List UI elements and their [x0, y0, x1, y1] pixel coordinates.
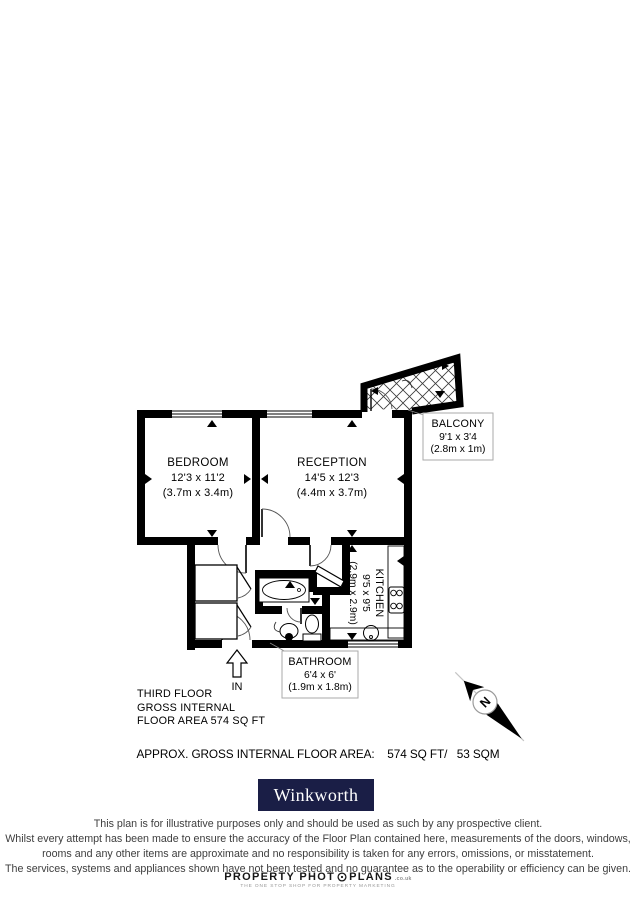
bathroom-dims-imperial: 6'4 x 6'	[304, 670, 336, 681]
footer-tagline: THE ONE STOP SHOP FOR PROPERTY MARKETING	[0, 884, 636, 889]
bathroom-label-box: BATHROOM 6'4 x 6' (1.9m x 1.8m)	[270, 643, 358, 698]
reception-dims-imperial: 14'5 x 12'3	[305, 472, 360, 484]
entrance-marker: IN	[227, 650, 247, 693]
toilet-tank	[303, 634, 321, 641]
balcony-dims-imperial: 9'1 x 3'4	[439, 432, 477, 443]
reception-label: RECEPTION	[297, 457, 367, 469]
floorplan-page: { "floor_plan": { "rooms": [ {"id":"bedr…	[0, 0, 636, 900]
footer-brand-left: PROPERTY PHOT	[224, 871, 335, 883]
balcony-label: BALCONY	[431, 418, 484, 430]
disclaimer-line3: rooms and any other items are approximat…	[0, 847, 636, 862]
gross-area-summary: APPROX. GROSS INTERNAL FLOOR AREA: 574 S…	[0, 747, 636, 761]
toilet-bowl	[306, 615, 319, 633]
cupboard-door-leaf	[315, 566, 344, 587]
footer-brand-suffix: .co.uk	[395, 876, 412, 882]
disclaimer-line2: Whilst every attempt has been made to en…	[0, 832, 636, 847]
floor-plan-drawing: BEDROOM 12'3 x 11'2 (3.7m x 3.4m) RECEPT…	[0, 0, 636, 770]
disclaimer: This plan is for illustrative purposes o…	[0, 817, 636, 877]
reception-dims-metric: (4.4m x 3.7m)	[297, 487, 367, 499]
kitchen-label: KITCHEN	[373, 569, 385, 618]
floor-summary-line3: FLOOR AREA 574 SQ FT	[137, 715, 265, 729]
hall-closets	[195, 565, 251, 639]
walls	[137, 410, 412, 650]
reception-window	[267, 411, 312, 417]
bathroom-dims-metric: (1.9m x 1.8m)	[288, 682, 352, 693]
camera-aperture-icon	[337, 872, 347, 882]
closet-1	[195, 565, 237, 601]
bathroom-door	[287, 608, 301, 624]
bedroom-dims-imperial: 12'3 x 11'2	[171, 472, 225, 484]
kitchen-dims-imperial: 9'5 x 9'5	[360, 574, 371, 612]
kitchen-label-group: KITCHEN 9'5 x 9'5 (2.9m x 2.9m)	[347, 561, 385, 625]
kitchen-dims-metric: (2.9m x 2.9m)	[347, 561, 358, 625]
bedroom-dims-metric: (3.7m x 3.4m)	[163, 487, 233, 499]
balcony-structure	[364, 358, 460, 412]
footer-brand-right: PLANS	[349, 871, 393, 883]
agent-logo-text: Winkworth	[274, 785, 359, 806]
kitchen-door	[310, 545, 331, 566]
balcony-dims-metric: (2.8m x 1m)	[431, 444, 486, 455]
bathroom-label: BATHROOM	[288, 656, 351, 668]
kitchen-window	[348, 641, 398, 647]
disclaimer-line1: This plan is for illustrative purposes o…	[0, 817, 636, 832]
footer-brand: PROPERTY PHOT PLANS .co.uk THE ONE STOP …	[0, 871, 636, 889]
cupboard	[315, 566, 344, 587]
closet-2	[195, 603, 237, 639]
floor-summary: THIRD FLOOR GROSS INTERNAL FLOOR AREA 57…	[137, 688, 265, 729]
bedroom-label: BEDROOM	[167, 457, 229, 469]
footer-brand-name: PROPERTY PHOT PLANS .co.uk	[0, 871, 636, 883]
bedroom-window	[172, 411, 222, 417]
floor-summary-line2: GROSS INTERNAL	[137, 702, 265, 716]
compass-north-icon: N	[447, 664, 533, 750]
agent-logo: Winkworth	[258, 779, 374, 811]
balcony-label-box: BALCONY 9'1 x 3'4 (2.8m x 1m)	[408, 410, 493, 460]
reception-door	[262, 509, 290, 537]
entrance-arrow-icon	[227, 650, 247, 677]
floor-summary-line1: THIRD FLOOR	[137, 688, 265, 702]
